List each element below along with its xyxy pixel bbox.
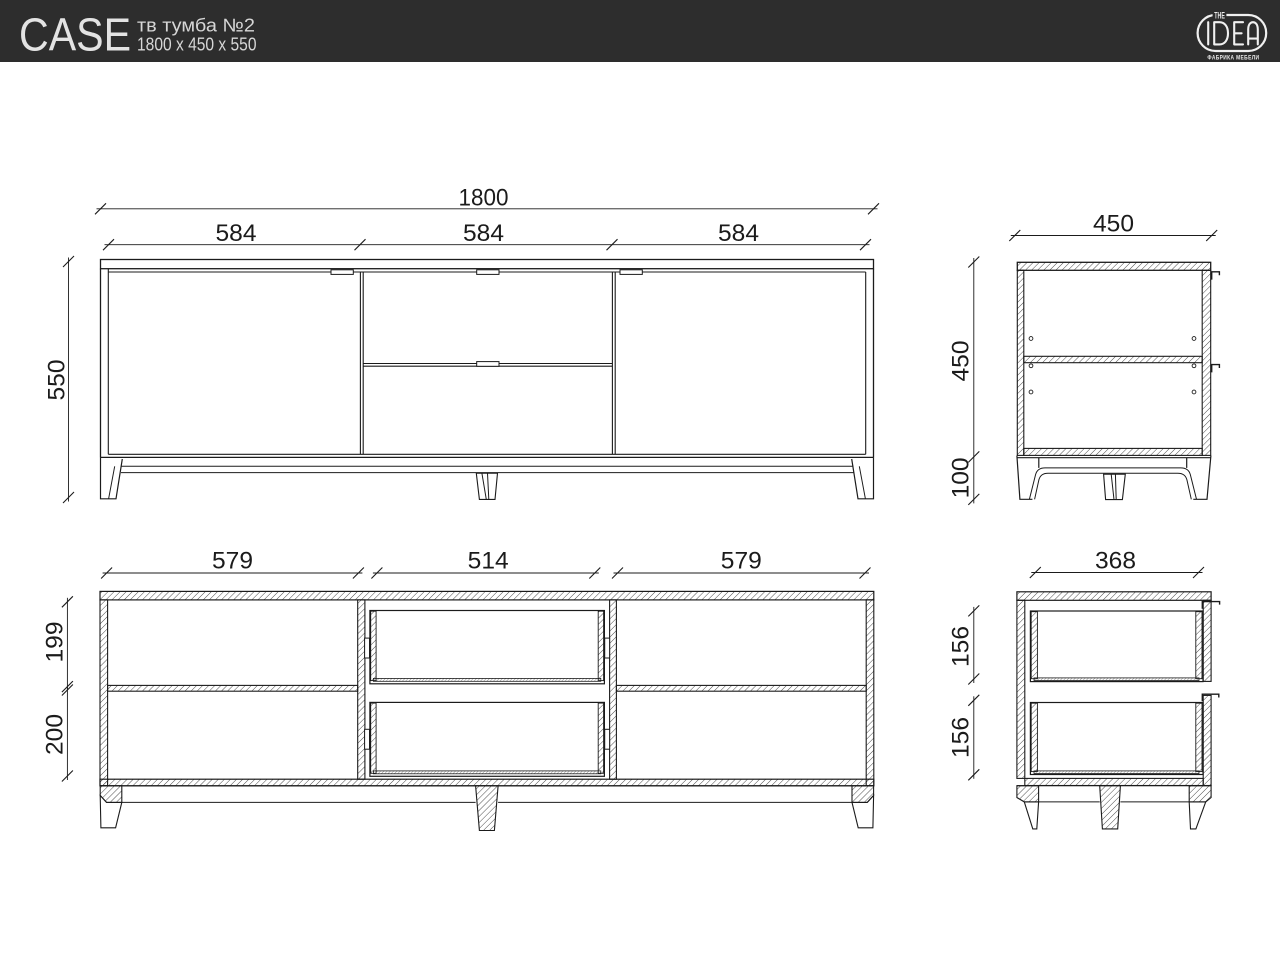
svg-text:тв тумба №2: тв тумба №2 [137,15,255,36]
svg-text:100: 100 [948,457,975,498]
svg-text:584: 584 [216,220,257,247]
svg-text:156: 156 [948,626,975,667]
svg-text:ФАБРИКА МЕБЕЛИ: ФАБРИКА МЕБЕЛИ [1207,55,1259,62]
svg-text:584: 584 [718,220,759,247]
svg-text:579: 579 [721,548,762,575]
svg-text:156: 156 [948,717,975,758]
svg-text:368: 368 [1095,548,1136,575]
svg-text:CASE: CASE [19,9,131,61]
svg-text:514: 514 [468,548,509,575]
svg-text:450: 450 [948,341,975,382]
svg-text:579: 579 [212,548,253,575]
svg-text:THE: THE [1214,11,1225,22]
svg-text:200: 200 [42,714,69,755]
svg-text:1800 x 450 x 550: 1800 x 450 x 550 [137,35,257,55]
svg-text:1800: 1800 [459,184,509,211]
svg-text:550: 550 [44,360,71,401]
svg-text:450: 450 [1093,211,1134,238]
svg-text:199: 199 [42,622,69,663]
svg-text:584: 584 [463,220,504,247]
